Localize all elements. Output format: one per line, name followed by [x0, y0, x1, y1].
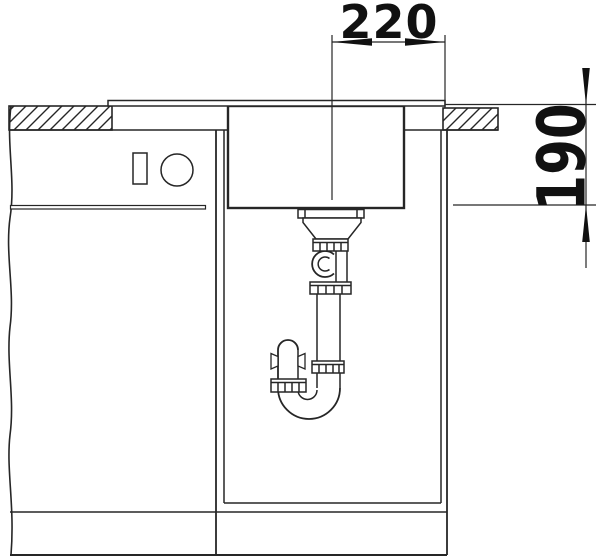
- dimension-depth-190: 190: [445, 68, 600, 268]
- dimension-label-depth: 190: [523, 103, 600, 210]
- sink-flange: [108, 101, 445, 107]
- coupling-nut-lower: [312, 361, 344, 373]
- sink: [108, 101, 445, 209]
- drawer-front-edge: [11, 206, 206, 210]
- elbow-bend: [312, 251, 334, 277]
- siphon-assembly: [271, 210, 364, 420]
- coupling-nut-upper: [310, 282, 351, 294]
- tailpipe: [336, 251, 347, 282]
- union-flange-right: [298, 354, 305, 370]
- sink-bowl: [228, 106, 404, 208]
- trap-arm-cap: [278, 340, 298, 350]
- drain-strainer-cup: [303, 218, 361, 239]
- downpipe: [317, 294, 340, 388]
- sink-cross-section-drawing: 220 190: [0, 0, 600, 558]
- drain-flange: [298, 210, 364, 219]
- countertop-left-hatch: [9, 106, 112, 130]
- dimension-label-width: 220: [339, 0, 438, 49]
- coupling-nut-top: [313, 239, 348, 251]
- arrowhead-top: [582, 68, 590, 105]
- countertop-right-hatch: [443, 108, 498, 130]
- drawer-knob-circle: [161, 154, 193, 186]
- coupling-nut-arm: [271, 379, 306, 392]
- installation-diagram: 220 190: [0, 0, 600, 558]
- break-line: [9, 106, 12, 555]
- union-flange-left: [271, 354, 278, 370]
- drawer-slot-rectangle: [133, 153, 147, 184]
